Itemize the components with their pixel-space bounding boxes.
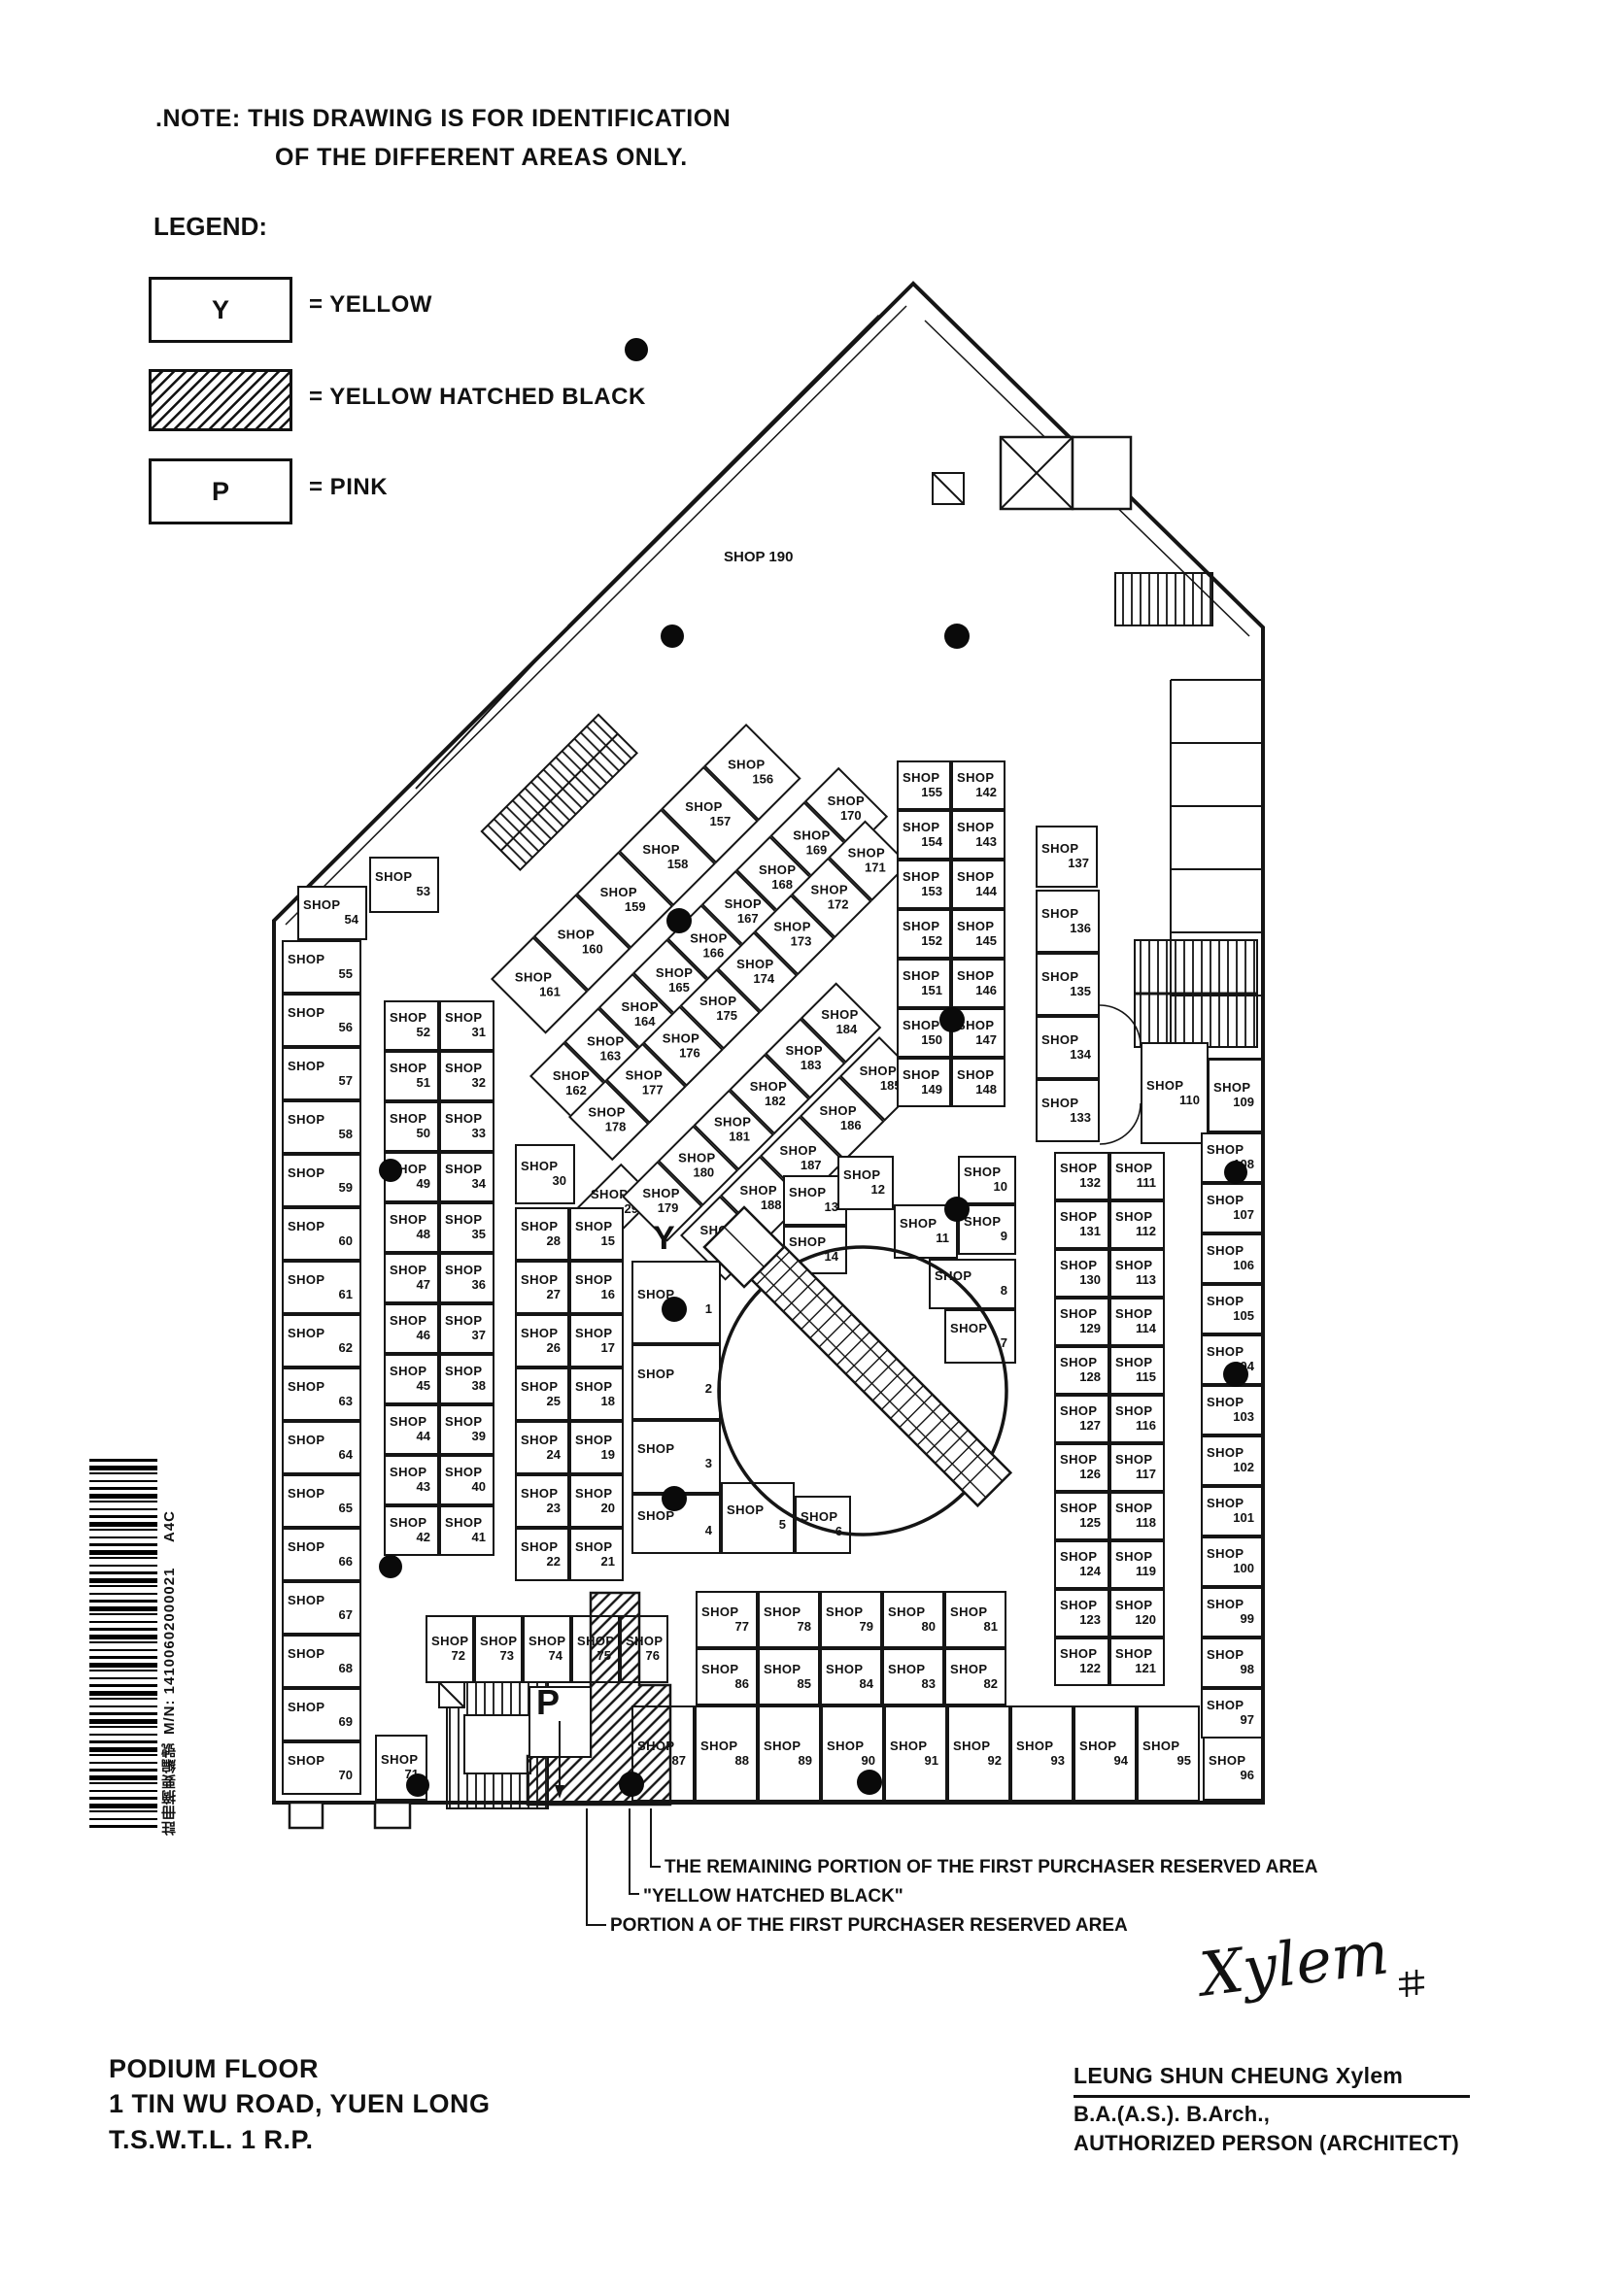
- legend-swatch-yellow: Y: [149, 277, 292, 343]
- shop-10: SHOP10: [958, 1156, 1016, 1204]
- shop-cell-153: SHOP153: [897, 860, 951, 909]
- shop-cell-48: SHOP48: [384, 1202, 439, 1253]
- shop-cell-126: SHOP126: [1054, 1443, 1109, 1492]
- shop-cell-129: SHOP129: [1054, 1298, 1109, 1346]
- shop-cell-89: SHOP89: [758, 1705, 821, 1802]
- legend-swatch-hatched: [149, 369, 292, 431]
- shop-cell-134: SHOP134: [1036, 1016, 1100, 1079]
- shop-1: SHOP1: [631, 1261, 721, 1344]
- shop-cell-150: SHOP150: [897, 1008, 951, 1058]
- shop-cell-76: SHOP76: [620, 1615, 668, 1683]
- shop-cell-31: SHOP31: [439, 1000, 494, 1051]
- legend-swatch-pink: P: [149, 458, 292, 524]
- shop-12: SHOP12: [837, 1156, 894, 1210]
- shops-bottom-row: SHOP87SHOP88SHOP89SHOP90SHOP91SHOP92SHOP…: [631, 1705, 1200, 1802]
- shop-cell-57: SHOP57: [282, 1047, 361, 1100]
- shop-cell-5: SHOP5: [721, 1482, 795, 1554]
- shop-cell-119: SHOP119: [1109, 1540, 1165, 1589]
- stair-right: [1135, 940, 1257, 1047]
- shop-cell-58: SHOP58: [282, 1100, 361, 1154]
- shop-cell-17: SHOP17: [569, 1314, 624, 1367]
- shop-cell-44: SHOP44: [384, 1404, 439, 1455]
- shop-cell-60: SHOP60: [282, 1207, 361, 1261]
- shop-cell-42: SHOP42: [384, 1505, 439, 1556]
- shop-cell-14: SHOP14: [783, 1226, 847, 1274]
- shop-cell-110: SHOP110: [1141, 1042, 1209, 1144]
- pink-area-marker: P: [536, 1682, 560, 1723]
- shop-cell-24: SHOP24: [515, 1421, 569, 1474]
- shop-cell-37: SHOP37: [439, 1303, 494, 1354]
- shop-cell-123: SHOP123: [1054, 1589, 1109, 1638]
- shop-cell-145: SHOP145: [951, 909, 1006, 959]
- signature-script: Xylem: [1200, 1928, 1388, 1999]
- elevator-box: [1001, 437, 1131, 509]
- shop-cell-30: SHOP30: [515, 1144, 575, 1204]
- shop-cell-7: SHOP7: [944, 1309, 1016, 1364]
- shop-cell-50: SHOP50: [384, 1101, 439, 1152]
- shop-cell-101: SHOP101: [1201, 1486, 1263, 1536]
- shop-cell-19: SHOP19: [569, 1421, 624, 1474]
- shop-cell-108: SHOP108: [1201, 1132, 1263, 1183]
- shop-cell-79: SHOP79: [820, 1591, 882, 1648]
- shop-cell-98: SHOP98: [1201, 1638, 1263, 1688]
- shop-8: SHOP8: [929, 1259, 1016, 1309]
- shop-cell-41: SHOP41: [439, 1505, 494, 1556]
- shop-cell-52: SHOP52: [384, 1000, 439, 1051]
- shop-cell-8: SHOP8: [929, 1259, 1016, 1309]
- shop-cell-66: SHOP66: [282, 1528, 361, 1581]
- shop-cell-28: SHOP28: [515, 1207, 569, 1261]
- shop-71: SHOP71: [375, 1735, 427, 1801]
- shops-pair-column-mid: SHOP155SHOP142SHOP154SHOP143SHOP153SHOP1…: [897, 760, 1006, 1107]
- shop-cell-51: SHOP51: [384, 1051, 439, 1101]
- barcode: [89, 1459, 157, 1832]
- shop-cell-93: SHOP93: [1010, 1705, 1074, 1802]
- drawing-sheet: .NOTE: THIS DRAWING IS FOR IDENTIFICATIO…: [0, 0, 1602, 2296]
- shop-53: SHOP53: [369, 857, 439, 913]
- legend-title: LEGEND:: [153, 212, 267, 242]
- shop-190-label: SHOP 190: [724, 549, 793, 565]
- shop-cell-86: SHOP86: [696, 1648, 758, 1705]
- shop-cell-34: SHOP34: [439, 1152, 494, 1202]
- shop-cell-113: SHOP113: [1109, 1249, 1165, 1298]
- shop-cell-95: SHOP95: [1137, 1705, 1200, 1802]
- shop-cell-100: SHOP100: [1201, 1536, 1263, 1587]
- shop-cell-132: SHOP132: [1054, 1152, 1109, 1200]
- shop-5: SHOP5: [721, 1482, 795, 1554]
- shop-cell-136: SHOP136: [1036, 890, 1100, 953]
- shop-cell-146: SHOP146: [951, 959, 1006, 1008]
- shop-cell-117: SHOP117: [1109, 1443, 1165, 1492]
- shop-109: SHOP109: [1208, 1059, 1263, 1132]
- shop-cell-4: SHOP4: [631, 1494, 721, 1554]
- shop-cell-112: SHOP112: [1109, 1200, 1165, 1249]
- shop-cell-118: SHOP118: [1109, 1492, 1165, 1540]
- shop-cell-115: SHOP115: [1109, 1346, 1165, 1395]
- shop-cell-65: SHOP65: [282, 1474, 361, 1528]
- shop-cell-32: SHOP32: [439, 1051, 494, 1101]
- shop-cell-25: SHOP25: [515, 1367, 569, 1421]
- shop-cell-27: SHOP27: [515, 1261, 569, 1314]
- shops-edge-column: SHOP108SHOP107SHOP106SHOP105SHOP104SHOP1…: [1201, 1132, 1263, 1739]
- shop-2: SHOP2: [631, 1344, 721, 1420]
- shop-cell-68: SHOP68: [282, 1635, 361, 1688]
- shop-cell-62: SHOP62: [282, 1314, 361, 1367]
- shop-cell-49: SHOP49: [384, 1152, 439, 1202]
- shops-pair-column-west: SHOP52SHOP31SHOP51SHOP32SHOP50SHOP33SHOP…: [384, 1000, 494, 1556]
- shop-cell-109: SHOP109: [1208, 1059, 1263, 1132]
- signature-name: LEUNG SHUN CHEUNG Xylem: [1074, 2063, 1470, 2098]
- shop-cell-121: SHOP121: [1109, 1638, 1165, 1686]
- shop-cell-69: SHOP69: [282, 1688, 361, 1741]
- stair-bottom-left: [439, 1682, 548, 1808]
- shop-cell-151: SHOP151: [897, 959, 951, 1008]
- shop-cell-103: SHOP103: [1201, 1385, 1263, 1435]
- shop-cell-122: SHOP122: [1054, 1638, 1109, 1686]
- shop-cell-84: SHOP84: [820, 1648, 882, 1705]
- shop-cell-114: SHOP114: [1109, 1298, 1165, 1346]
- shop-cell-73: SHOP73: [474, 1615, 523, 1683]
- shop-cell-23: SHOP23: [515, 1474, 569, 1528]
- shop-cell-71: SHOP71: [375, 1735, 427, 1801]
- shop-cell-152: SHOP152: [897, 909, 951, 959]
- legend-symbol-y: Y: [212, 295, 229, 325]
- note-line-1: .NOTE: THIS DRAWING IS FOR IDENTIFICATIO…: [155, 105, 731, 133]
- shop-7: SHOP7: [944, 1309, 1016, 1364]
- shop-cell-107: SHOP107: [1201, 1183, 1263, 1233]
- shop-cell-147: SHOP147: [951, 1008, 1006, 1058]
- shop-cell-16: SHOP16: [569, 1261, 624, 1314]
- shop-cell-77: SHOP77: [696, 1591, 758, 1648]
- shop-cell-39: SHOP39: [439, 1404, 494, 1455]
- annotation-remaining-portion: THE REMAINING PORTION OF THE FIRST PURCH…: [665, 1857, 1317, 1878]
- title-floor: PODIUM FLOOR: [109, 2051, 491, 2086]
- shop-cell-133: SHOP133: [1036, 1079, 1100, 1142]
- shop-cell-20: SHOP20: [569, 1474, 624, 1528]
- shops-row-72-76: SHOP72SHOP73SHOP74SHOP75SHOP76: [426, 1615, 668, 1683]
- shop-96: SHOP96: [1203, 1737, 1263, 1801]
- shop-cell-64: SHOP64: [282, 1421, 361, 1474]
- shop-cell-21: SHOP21: [569, 1528, 624, 1581]
- shop-11: SHOP11: [894, 1204, 958, 1259]
- shop-cell-155: SHOP155: [897, 760, 951, 810]
- shop-cell-127: SHOP127: [1054, 1395, 1109, 1443]
- shop-cell-70: SHOP70: [282, 1741, 361, 1795]
- shop-cell-96: SHOP96: [1203, 1737, 1263, 1801]
- shop-cell-33: SHOP33: [439, 1101, 494, 1152]
- shop-110: SHOP110: [1141, 1042, 1209, 1144]
- title-lot: T.S.W.T.L. 1 R.P.: [109, 2122, 491, 2157]
- shop-cell-154: SHOP154: [897, 810, 951, 860]
- shop-cell-55: SHOP55: [282, 940, 361, 994]
- shop-cell-6: SHOP6: [795, 1496, 851, 1554]
- shop-30: SHOP30: [515, 1144, 575, 1204]
- barcode-suffix: A4C: [161, 1510, 178, 1542]
- shop-cell-128: SHOP128: [1054, 1346, 1109, 1395]
- signature-role: AUTHORIZED PERSON (ARCHITECT): [1074, 2131, 1459, 2156]
- yellow-area-marker: Y: [653, 1220, 675, 1258]
- shop-cell-143: SHOP143: [951, 810, 1006, 860]
- shop-cell-105: SHOP105: [1201, 1284, 1263, 1334]
- shop-cell-91: SHOP91: [884, 1705, 947, 1802]
- shops-left-column: SHOP55SHOP56SHOP57SHOP58SHOP59SHOP60SHOP…: [282, 940, 361, 1795]
- shop-cell-54: SHOP54: [297, 886, 367, 940]
- shop-cell-38: SHOP38: [439, 1354, 494, 1404]
- shop-cell-83: SHOP83: [882, 1648, 944, 1705]
- shop-cell-40: SHOP40: [439, 1455, 494, 1505]
- shop-cell-63: SHOP63: [282, 1367, 361, 1421]
- shop-cell-116: SHOP116: [1109, 1395, 1165, 1443]
- shop-cell-94: SHOP94: [1074, 1705, 1137, 1802]
- shop-cell-137: SHOP137: [1036, 826, 1098, 888]
- shop-cell-148: SHOP148: [951, 1058, 1006, 1107]
- shop-cell-85: SHOP85: [758, 1648, 820, 1705]
- annotation-portion-a: PORTION A OF THE FIRST PURCHASER RESERVE…: [610, 1915, 1128, 1937]
- shops-block-77-86: SHOP77SHOP78SHOP79SHOP80SHOP81SHOP86SHOP…: [696, 1591, 1006, 1705]
- shop-54: SHOP54: [297, 886, 367, 940]
- shop-cell-46: SHOP46: [384, 1303, 439, 1354]
- legend-symbol-p: P: [212, 477, 229, 507]
- shop-cell-43: SHOP43: [384, 1455, 439, 1505]
- shop-cell-53: SHOP53: [369, 857, 439, 913]
- shop-cell-3: SHOP3: [631, 1420, 721, 1494]
- shop-cell-90: SHOP90: [821, 1705, 884, 1802]
- annotation-yellow-hatched-black: "YELLOW HATCHED BLACK": [643, 1886, 903, 1908]
- signature-qualification: B.A.(A.S.). B.Arch.,: [1074, 2102, 1270, 2127]
- shops-column-136-133: SHOP136SHOP135SHOP134SHOP133: [1036, 890, 1100, 1142]
- shop-cell-45: SHOP45: [384, 1354, 439, 1404]
- barcode-code: M/N: 14100602000021: [161, 1568, 178, 1735]
- shop-cell-88: SHOP88: [695, 1705, 758, 1802]
- shop-4: SHOP4: [631, 1494, 721, 1554]
- shops-pair-column-center: SHOP28SHOP15SHOP27SHOP16SHOP26SHOP17SHOP…: [515, 1207, 624, 1581]
- shop-cell-106: SHOP106: [1201, 1233, 1263, 1284]
- shop-cell-135: SHOP135: [1036, 953, 1100, 1016]
- shop-cell-120: SHOP120: [1109, 1589, 1165, 1638]
- shop-cell-22: SHOP22: [515, 1528, 569, 1581]
- shop-cell-75: SHOP75: [571, 1615, 620, 1683]
- legend-label-hatched: = YELLOW HATCHED BLACK: [309, 384, 646, 411]
- shop-cell-97: SHOP97: [1201, 1688, 1263, 1739]
- shop-cell-36: SHOP36: [439, 1253, 494, 1303]
- shop-cell-59: SHOP59: [282, 1154, 361, 1207]
- title-address: 1 TIN WU ROAD, YUEN LONG: [109, 2086, 491, 2121]
- shop-cell-125: SHOP125: [1054, 1492, 1109, 1540]
- shop-cell-15: SHOP15: [569, 1207, 624, 1261]
- shop-cell-131: SHOP131: [1054, 1200, 1109, 1249]
- shop-cell-9: SHOP9: [958, 1204, 1016, 1255]
- shop-3: SHOP3: [631, 1420, 721, 1494]
- shop-cell-74: SHOP74: [523, 1615, 571, 1683]
- shop-cell-80: SHOP80: [882, 1591, 944, 1648]
- shop-137: SHOP137: [1036, 826, 1098, 888]
- shop-cell-124: SHOP124: [1054, 1540, 1109, 1589]
- shop-cell-104: SHOP104: [1201, 1334, 1263, 1385]
- shop-cell-102: SHOP102: [1201, 1435, 1263, 1486]
- shop-cell-67: SHOP67: [282, 1581, 361, 1635]
- shop-cell-99: SHOP99: [1201, 1587, 1263, 1638]
- note-line-2: OF THE DIFFERENT AREAS ONLY.: [275, 144, 688, 172]
- shops-pair-column-east: SHOP132SHOP111SHOP131SHOP112SHOP130SHOP1…: [1054, 1152, 1165, 1686]
- shop-cell-12: SHOP12: [837, 1156, 894, 1210]
- shop-cell-18: SHOP18: [569, 1367, 624, 1421]
- shop-cell-144: SHOP144: [951, 860, 1006, 909]
- barcode-cjk: 註冊摘要編號: [159, 1742, 180, 1836]
- legend-label-pink: = PINK: [309, 474, 388, 501]
- shop-cell-82: SHOP82: [944, 1648, 1006, 1705]
- title-block: PODIUM FLOOR 1 TIN WU ROAD, YUEN LONG T.…: [109, 2051, 491, 2157]
- shop-cell-92: SHOP92: [947, 1705, 1010, 1802]
- shop-cell-35: SHOP35: [439, 1202, 494, 1253]
- shop-cell-130: SHOP130: [1054, 1249, 1109, 1298]
- legend-label-yellow: = YELLOW: [309, 291, 432, 319]
- shop-cell-11: SHOP11: [894, 1204, 958, 1259]
- shop-cell-142: SHOP142: [951, 760, 1006, 810]
- shop-cell-1: SHOP1: [631, 1261, 721, 1344]
- shop-cell-56: SHOP56: [282, 994, 361, 1047]
- stair-top-right: [1115, 573, 1212, 625]
- shop-cell-72: SHOP72: [426, 1615, 474, 1683]
- shop-cell-87: SHOP87: [631, 1705, 695, 1802]
- shop-cell-47: SHOP47: [384, 1253, 439, 1303]
- shop-cell-61: SHOP61: [282, 1261, 361, 1314]
- shop-cell-78: SHOP78: [758, 1591, 820, 1648]
- shop-9: SHOP9: [958, 1204, 1016, 1255]
- shop-cell-81: SHOP81: [944, 1591, 1006, 1648]
- barcode-text: 註冊摘要編號 M/N: 14100602000021 A4C: [159, 1457, 180, 1836]
- shop-cell-149: SHOP149: [897, 1058, 951, 1107]
- shop-cell-10: SHOP10: [958, 1156, 1016, 1204]
- shop-cell-111: SHOP111: [1109, 1152, 1165, 1200]
- shop-6: SHOP6: [795, 1496, 851, 1554]
- shop-14: SHOP14: [783, 1226, 847, 1274]
- shop-cell-2: SHOP2: [631, 1344, 721, 1420]
- shop-cell-26: SHOP26: [515, 1314, 569, 1367]
